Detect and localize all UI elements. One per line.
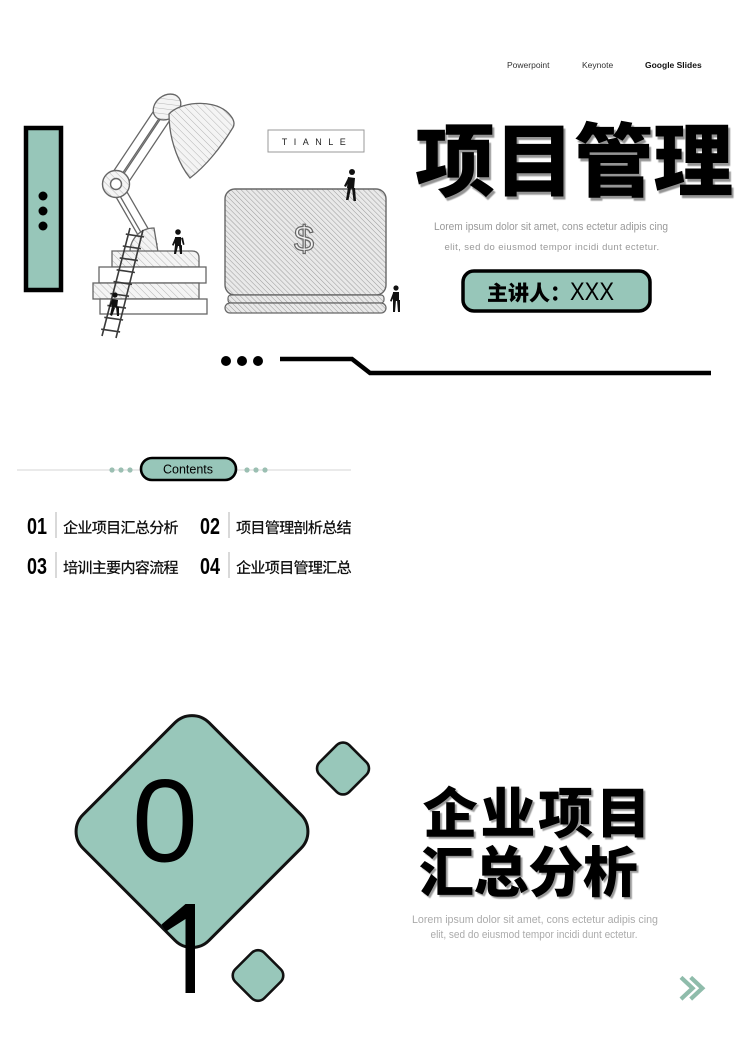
svg-text:TIANLE: TIANLE bbox=[282, 137, 353, 147]
svg-text:$: $ bbox=[294, 218, 314, 259]
svg-text:Powerpoint: Powerpoint bbox=[507, 60, 550, 70]
svg-text:elit, sed do eiusmod tempor in: elit, sed do eiusmod tempor incidi dunt … bbox=[444, 242, 659, 253]
svg-text:0: 0 bbox=[132, 756, 198, 888]
svg-text:elit, sed do eiusmod tempor in: elit, sed do eiusmod tempor incidi dunt … bbox=[431, 929, 638, 941]
svg-text:04: 04 bbox=[200, 553, 220, 579]
svg-text:Google Slides: Google Slides bbox=[645, 60, 702, 70]
svg-text:Keynote: Keynote bbox=[582, 60, 613, 70]
svg-text:02: 02 bbox=[200, 513, 220, 539]
svg-text:XXX: XXX bbox=[570, 278, 614, 306]
svg-text:01: 01 bbox=[27, 513, 47, 539]
svg-text:Lorem ipsum dolor sit amet, co: Lorem ipsum dolor sit amet, cons ectetur… bbox=[412, 914, 658, 926]
svg-text:Lorem ipsum dolor sit amet, co: Lorem ipsum dolor sit amet, cons ectetur… bbox=[434, 221, 668, 233]
svg-text:03: 03 bbox=[27, 553, 47, 579]
svg-text:Contents: Contents bbox=[163, 463, 213, 477]
